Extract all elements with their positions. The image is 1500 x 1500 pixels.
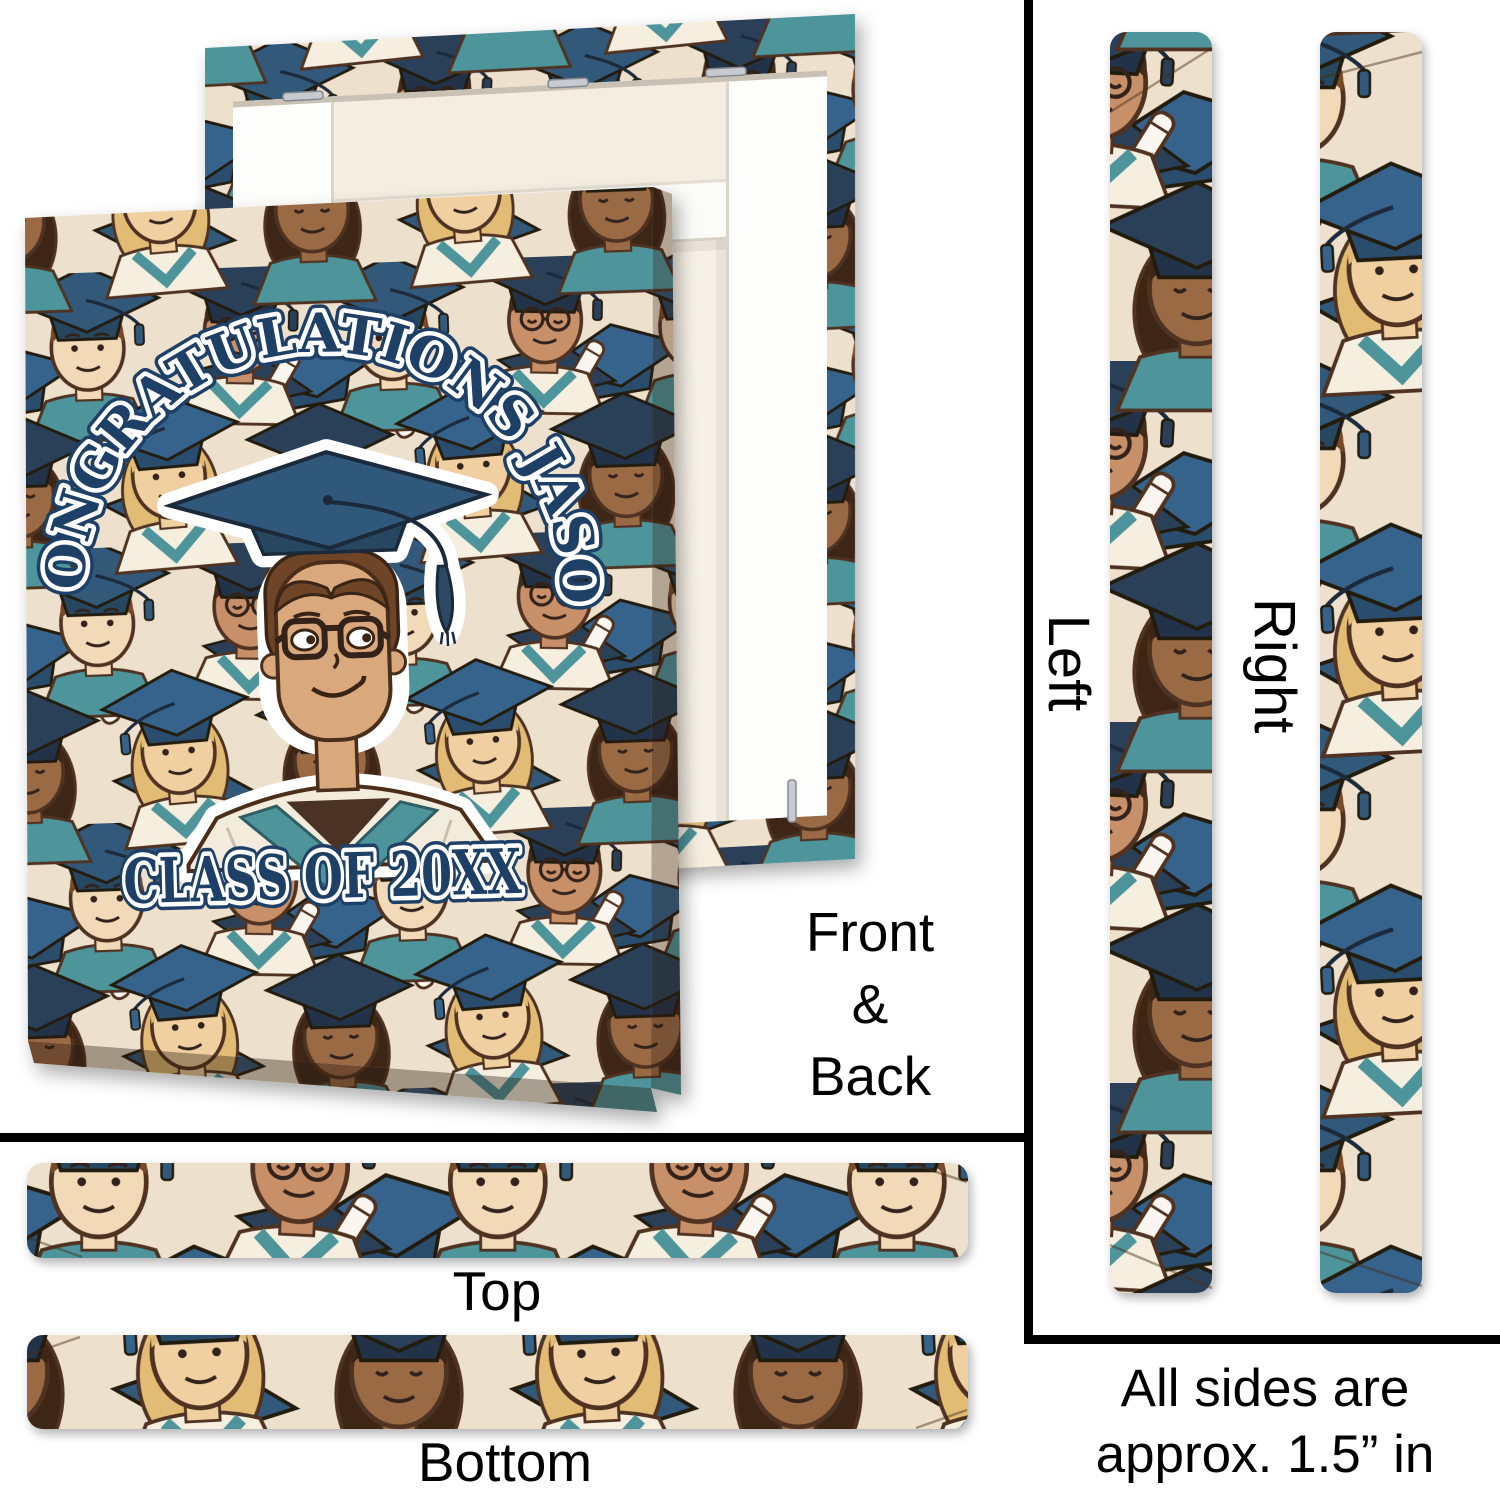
front-back-label-line: Back [710, 1040, 1030, 1112]
staple [788, 780, 796, 822]
bottom-side-label: Bottom [405, 1434, 605, 1490]
size-note: All sides are approx. 1.5” in [1040, 1356, 1490, 1488]
divider-horizontal-right [1024, 1335, 1500, 1344]
front-back-label-line: Front [710, 896, 1030, 968]
right-side-label: Right [1244, 598, 1304, 718]
front-back-label: Front & Back [710, 896, 1030, 1112]
class-text: CLASS OF 20XX CLASS OF 20XX CLASS OF 20X… [123, 834, 523, 918]
staple [548, 78, 588, 88]
side-strip-right [1320, 32, 1422, 1293]
staple [283, 91, 323, 101]
top-side-label: Top [397, 1263, 597, 1319]
divider-vertical [1024, 0, 1033, 1344]
side-strip-top [27, 1163, 968, 1258]
size-note-line: All sides are [1040, 1356, 1490, 1422]
side-strip-left [1110, 32, 1212, 1293]
side-strip-bottom [27, 1335, 968, 1429]
class-text-fill: CLASS OF 20XX [123, 834, 523, 918]
divider-horizontal-left [0, 1133, 1033, 1142]
staple [706, 67, 746, 77]
product-views-graphic: CONGRATULATIONS JASON CONGRATULATIONS JA… [0, 0, 1500, 1500]
size-note-line: approx. 1.5” in [1040, 1422, 1490, 1488]
product-preview: CONGRATULATIONS JASON CONGRATULATIONS JA… [0, 0, 1500, 1500]
left-side-label: Left [1038, 603, 1098, 723]
front-back-label-line: & [710, 968, 1030, 1040]
